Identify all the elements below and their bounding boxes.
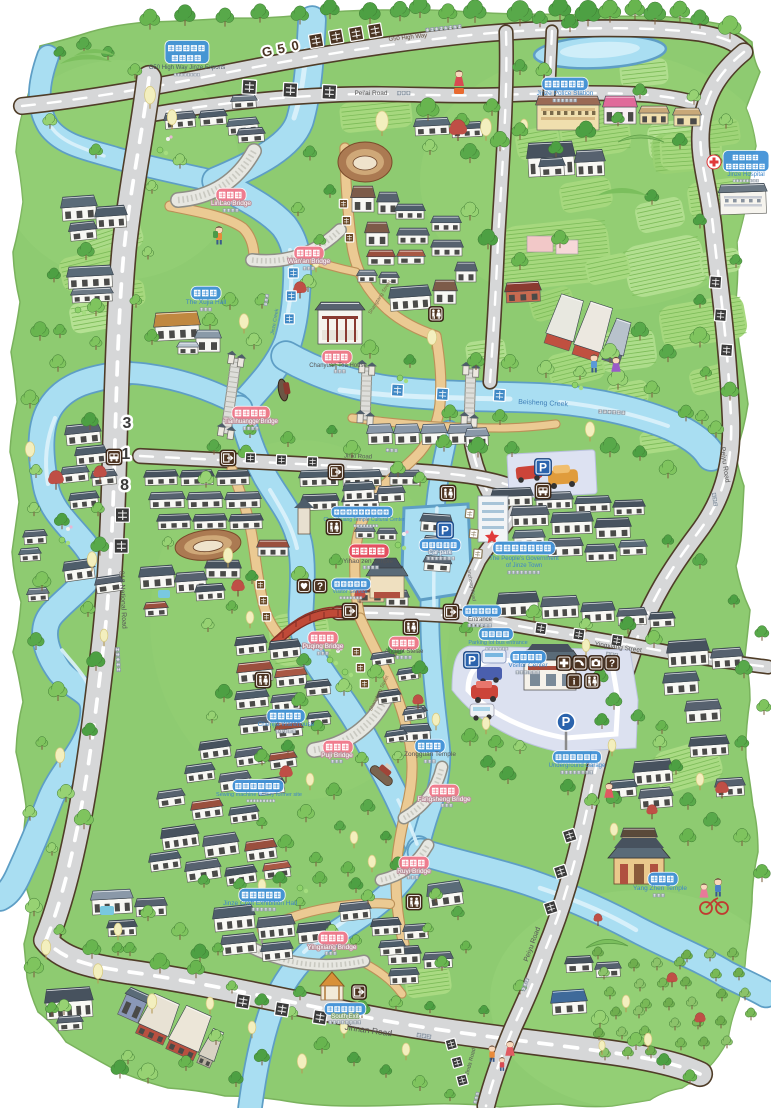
svg-text:South Exit: South Exit: [331, 1014, 359, 1020]
svg-text:P: P: [441, 524, 449, 538]
svg-text:Puji Bridge: Puji Bridge: [321, 752, 353, 759]
svg-text:Visitor Center: Visitor Center: [508, 662, 548, 669]
svg-text:Jinze Hospital: Jinze Hospital: [727, 172, 764, 178]
svg-text:Jinxi Road: Jinxi Road: [344, 454, 372, 461]
svg-text:Yingxiang Bridge: Yingxiang Bridge: [308, 944, 357, 951]
svg-text:Sewing machine factory former: Sewing machine factory former site: [216, 792, 302, 798]
svg-text:Yang Zhen Temple: Yang Zhen Temple: [633, 885, 687, 892]
svg-text:Chanyuan Tea House: Chanyuan Tea House: [309, 363, 367, 369]
svg-text:Underground Garage: Underground Garage: [549, 763, 606, 769]
svg-text:8: 8: [120, 477, 129, 494]
svg-text:P: P: [562, 714, 571, 729]
svg-text:3: 3: [123, 415, 132, 432]
svg-text:Jinze Police Station: Jinze Police Station: [537, 90, 594, 97]
svg-text:LinLao Bridge: LinLao Bridge: [211, 200, 251, 207]
svg-text:Ancient Stelae: Ancient Stelae: [385, 649, 424, 655]
svg-text:P: P: [468, 654, 476, 668]
svg-text:Visitor Service: Visitor Service: [332, 589, 367, 595]
svg-text:P: P: [539, 461, 547, 475]
svg-text:Fangsheng Bridge: Fangsheng Bridge: [417, 796, 471, 803]
svg-text:Jinze Craft Exhibition Hall: Jinze Craft Exhibition Hall: [223, 900, 298, 907]
svg-text:Wan'an Bridge: Wan'an Bridge: [288, 258, 331, 265]
svg-text:Parking lot bus entrance: Parking lot bus entrance: [468, 640, 527, 646]
svg-text:The Xujia Hall: The Xujia Hall: [186, 299, 227, 306]
svg-text:Chenjia Warehouse: Chenjia Warehouse: [258, 721, 315, 728]
svg-text:G50 High Way Jinze Exports: G50 High Way Jinze Exports: [149, 65, 225, 71]
svg-text:Car park: Car park: [428, 550, 452, 556]
svg-text:i: i: [573, 677, 576, 687]
svg-text:of Jinze Town: of Jinze Town: [506, 563, 542, 569]
svg-text:Yihao zen temple: Yihao zen temple: [343, 558, 393, 565]
svg-text:Pei'ai Road: Pei'ai Road: [354, 90, 387, 97]
svg-text:1: 1: [121, 446, 130, 463]
svg-text:?: ?: [317, 582, 323, 593]
svg-text:Entrance: Entrance: [468, 617, 493, 623]
svg-text:?: ?: [609, 659, 615, 670]
svg-text:Tianhuangge Bridge: Tianhuangge Bridge: [224, 419, 278, 425]
svg-text:Ruyi Bridge: Ruyi Bridge: [397, 868, 431, 875]
svg-text:Puqing Bridge: Puqing Bridge: [303, 643, 344, 650]
svg-text:The People's Government: The People's Government: [489, 556, 559, 562]
svg-text:Zongguan Temple: Zongguan Temple: [404, 751, 456, 758]
